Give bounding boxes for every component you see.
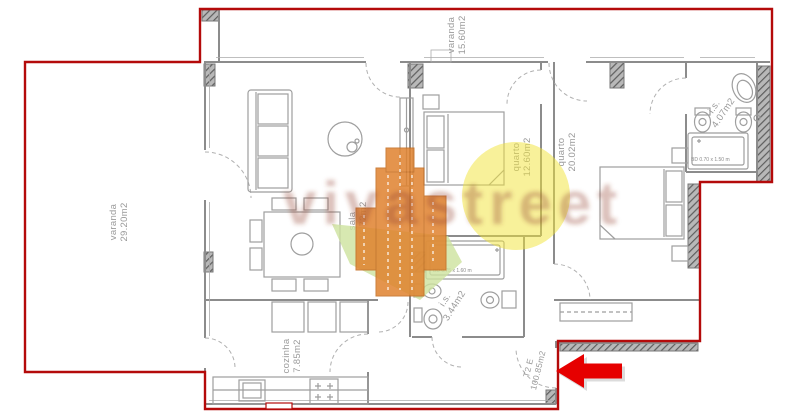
kitchen-counter — [213, 302, 368, 404]
bathtub-top — [688, 133, 748, 169]
plant-table — [328, 122, 362, 156]
toilet-bidet-top — [695, 108, 761, 132]
sink-top — [728, 70, 761, 106]
entrance-arrow-icon — [556, 354, 625, 391]
wardrobe-quarto-1 — [400, 98, 413, 186]
bed-quarto-1 — [423, 95, 504, 185]
bathtub-middle-dimension: BD 0.75 x 1.60 m — [433, 268, 472, 274]
floorplan-drawing: BD 0.70 x 1.50 m BD 0.75 x 1.60 m — [0, 0, 800, 417]
gate-mark — [266, 403, 292, 409]
floorplan-canvas: BD 0.70 x 1.50 m BD 0.75 x 1.60 m varand… — [0, 0, 800, 417]
sink-bidet-middle — [414, 284, 442, 329]
dining-table — [250, 198, 340, 291]
bathtub-top-dimension: BD 0.70 x 1.50 m — [691, 157, 730, 163]
wall-piers — [202, 10, 770, 404]
entry-closet — [560, 303, 632, 321]
sofa — [248, 90, 292, 192]
bed-quarto-2 — [600, 148, 688, 261]
toilet-middle — [481, 291, 516, 308]
